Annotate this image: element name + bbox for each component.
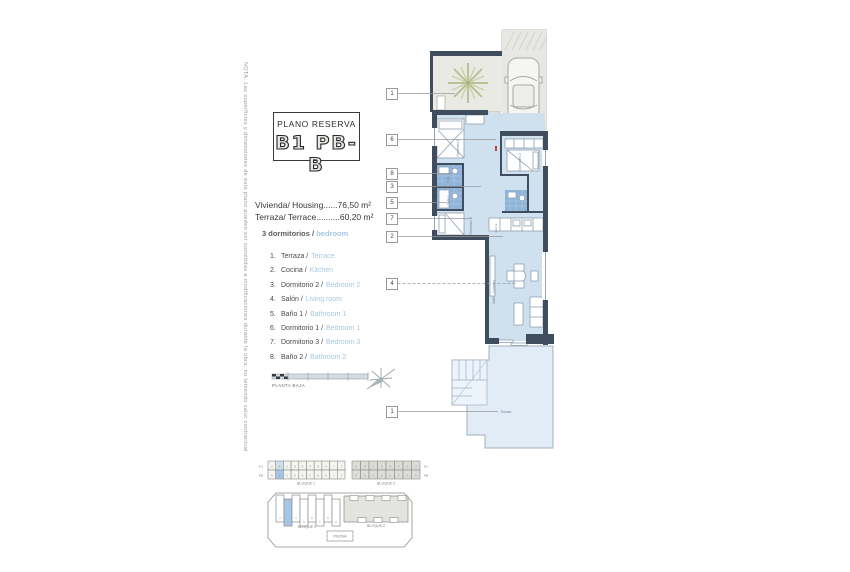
svg-text:H: H — [415, 473, 417, 477]
callout-box-5: 5 — [386, 197, 398, 209]
svg-text:Baño 1: Baño 1 — [446, 195, 450, 204]
svg-text:C: C — [295, 516, 297, 520]
svg-text:Dormitorio 2: Dormitorio 2 — [518, 153, 522, 171]
svg-text:F: F — [309, 464, 311, 468]
svg-text:A: A — [279, 516, 281, 520]
block-elevation-key: ABCDEFGHIJABCDEFGHIJABCDEFGHABCDEFGHP1PB… — [259, 461, 429, 486]
svg-text:Dormitorio 1: Dormitorio 1 — [456, 139, 460, 157]
floor-label: PLANTA BAJA — [272, 383, 305, 388]
callout-box-8: 8 — [386, 168, 398, 180]
svg-text:PB: PB — [424, 474, 428, 478]
piscina-label: PISCINA — [333, 535, 347, 539]
tree-icon — [448, 63, 488, 103]
svg-text:P1: P1 — [259, 465, 263, 469]
svg-text:E: E — [302, 473, 304, 477]
svg-text:H: H — [325, 464, 327, 468]
svg-text:B: B — [279, 464, 281, 468]
svg-text:D: D — [303, 520, 305, 524]
svg-text:E: E — [389, 464, 391, 468]
compass-icon — [367, 368, 395, 389]
svg-text:F: F — [398, 473, 400, 477]
svg-text:F: F — [398, 464, 400, 468]
svg-text:Terraza: Terraza — [501, 410, 512, 414]
site-plan-key: ABCDEFGH BLOQUE 1 BLOQUE 2 PISCINA — [268, 493, 412, 547]
bloque2-site — [344, 496, 408, 523]
svg-text:A: A — [355, 473, 357, 477]
svg-text:Baño 2: Baño 2 — [446, 173, 450, 182]
svg-text:BLOQUE 2: BLOQUE 2 — [377, 482, 395, 486]
svg-text:H: H — [325, 473, 327, 477]
svg-text:BLOQUE 1: BLOQUE 1 — [297, 482, 315, 486]
svg-text:E: E — [311, 516, 313, 520]
callout-box-4: 4 — [386, 278, 398, 290]
svg-text:A: A — [271, 473, 273, 477]
svg-text:F: F — [309, 473, 311, 477]
svg-text:B: B — [364, 473, 366, 477]
svg-text:B: B — [287, 520, 289, 524]
svg-text:P1: P1 — [424, 465, 428, 469]
svg-text:F: F — [319, 520, 321, 524]
svg-text:PB: PB — [259, 474, 263, 478]
svg-text:A: A — [271, 464, 273, 468]
svg-text:Dormitorio 3: Dormitorio 3 — [469, 217, 473, 235]
callout-box-3: 3 — [386, 181, 398, 193]
site-bloque1-label: BLOQUE 1 — [298, 525, 316, 529]
svg-text:B: B — [279, 473, 281, 477]
svg-text:Salón - Comedor: Salón - Comedor — [492, 279, 496, 304]
svg-text:H: H — [415, 464, 417, 468]
svg-text:G: G — [327, 516, 329, 520]
svg-text:Cocina: Cocina — [494, 223, 498, 232]
svg-text:E: E — [389, 473, 391, 477]
plan-sheet: NOTA: Las superficies y dimensiones de e… — [0, 0, 850, 572]
svg-text:B: B — [364, 464, 366, 468]
terrace-stair — [452, 360, 487, 405]
callout-box-6: 6 — [386, 134, 398, 146]
svg-text:E: E — [302, 464, 304, 468]
svg-text:A: A — [355, 464, 357, 468]
callout-box-7: 7 — [386, 213, 398, 225]
site-bloque2-label: BLOQUE 2 — [367, 524, 385, 528]
scale-bar: PLANTA BAJA — [272, 372, 368, 388]
floor-plan-drawing: Dormitorio 1 Baño 2 Baño 1 Dormitorio 3 … — [0, 0, 850, 572]
callout-box-1: 1 — [386, 88, 398, 100]
svg-text:H: H — [335, 520, 337, 524]
callout-box-1: 1 — [386, 406, 398, 418]
callout-box-2: 2 — [386, 231, 398, 243]
